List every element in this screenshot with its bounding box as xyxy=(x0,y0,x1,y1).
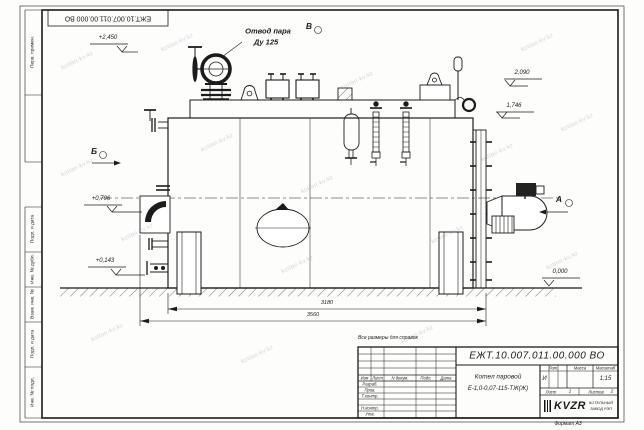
elevation-marks xyxy=(84,44,580,286)
strip-label-inv-dubl: Инв. № дубл. xyxy=(31,254,36,284)
reference-note: Все размеры для справок xyxy=(358,335,418,341)
view-label-b: Б xyxy=(91,146,97,156)
view-label-a: А xyxy=(556,194,562,204)
massa-header: Масса xyxy=(574,366,586,371)
strip-label-vzam-inv: Взам. инв. № xyxy=(31,289,36,319)
level-gauges xyxy=(344,102,412,166)
elevation-0000: 0,000 xyxy=(552,269,567,275)
elevation-1746: 1,746 xyxy=(506,103,521,109)
strip-label-podp-data-1: Подп. и дата xyxy=(31,215,36,243)
row-label-utv: Утв. xyxy=(365,412,375,417)
sheets-label: Листов xyxy=(588,389,603,394)
boiler-body xyxy=(100,100,560,288)
elevation-2450: +2,450 xyxy=(99,35,118,41)
sheets-value: 2 xyxy=(611,389,614,394)
elevation-2090: 2,090 xyxy=(514,70,529,76)
sheet-label: Лист xyxy=(546,389,557,394)
product-name-line1: Котел паровой xyxy=(475,374,522,381)
elevation-0796: +0,796 xyxy=(92,196,111,202)
top-designation-label: ЕЖТ.10.007.011.00.000 ВО xyxy=(65,15,151,22)
row-label-nkontr: Н.контр. xyxy=(361,406,379,411)
lit-header: Лит. xyxy=(549,366,559,371)
scale-value: 1:15 xyxy=(600,376,612,382)
masshtab-header: Масштаб xyxy=(596,366,616,371)
left-fittings xyxy=(140,110,170,275)
format-note: Формат А3 xyxy=(554,421,581,427)
strip-label-inv-podl: Инв. № подл. xyxy=(31,377,36,407)
dim-3560: 3560 xyxy=(307,312,319,318)
steam-outlet-leader xyxy=(222,42,242,57)
manhole xyxy=(255,203,311,247)
row-label-prov: Пров. xyxy=(364,388,375,393)
safety-valves xyxy=(266,74,319,100)
sheet-value: 1 xyxy=(569,389,572,394)
strip-label-perv-primen: Перв. примен. xyxy=(31,36,36,68)
company-name-line1: КОТЕЛЬНЫЙ xyxy=(589,401,613,405)
company-name-line2: ЗАВОД РЭП xyxy=(590,407,612,411)
drawing-canvas xyxy=(0,0,644,430)
steam-outlet-callout-line1: Отвод пара xyxy=(245,27,291,36)
company-logo-barcode xyxy=(544,400,552,412)
col-header-data: Дата xyxy=(440,376,451,381)
col-header-n-dokum: N докум. xyxy=(392,376,409,381)
strip-label-podp-data-2: Подп. и дата xyxy=(31,330,36,358)
titleblock-designation: ЕЖТ.10.007.011.00.000 ВО xyxy=(469,351,605,362)
col-header-izm: Изм xyxy=(361,376,369,381)
lifting-lug xyxy=(241,86,258,100)
ground-line xyxy=(60,288,582,297)
company-logo: KVZR xyxy=(554,400,586,412)
lit-value: И xyxy=(542,376,546,382)
row-label-razrab: Разраб. xyxy=(362,382,377,387)
col-header-list: Лист xyxy=(372,376,383,381)
burner xyxy=(487,183,547,233)
col-header-podp: Подп. xyxy=(420,376,431,381)
product-name-line2: Е-1,0-0,07-115-ТЖ(Ж) xyxy=(468,386,528,392)
drawing-sheet: { "frame": { "top_designation": "ЕЖТ.10.… xyxy=(0,0,644,430)
row-label-tkontr: Т.контр. xyxy=(362,394,379,399)
steam-outlet-callout-line2: Ду 125 xyxy=(254,38,278,47)
view-label-v: В xyxy=(306,21,312,31)
dim-3180: 3180 xyxy=(321,300,333,306)
support-legs xyxy=(177,232,463,294)
top-right-equipment xyxy=(420,57,475,111)
elevation-0143: +0,143 xyxy=(96,258,115,264)
